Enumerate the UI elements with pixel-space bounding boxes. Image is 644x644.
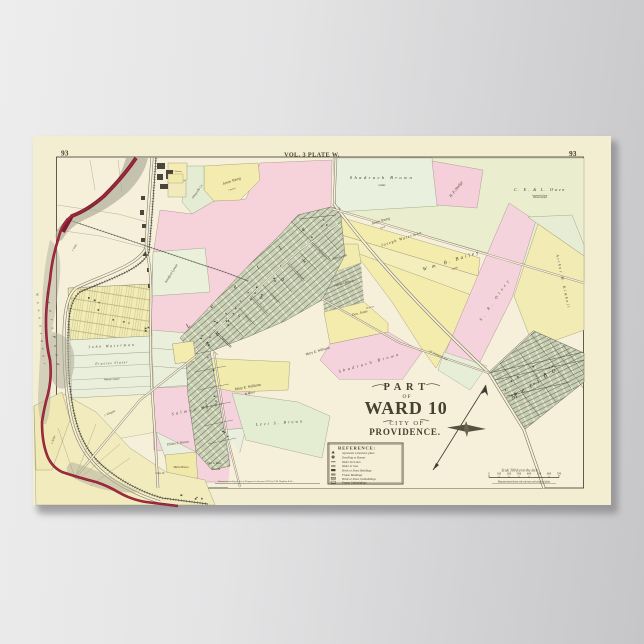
svg-text:Measurements from city surveys: Measurements from city surveys and origi… bbox=[497, 481, 551, 484]
svg-text:Shadrach Brown: Shadrach Brown bbox=[350, 175, 414, 180]
svg-text:represents a business place: represents a business place bbox=[342, 451, 375, 455]
svg-text:PROVIDENCE.: PROVIDENCE. bbox=[369, 427, 441, 437]
svg-text:700: 700 bbox=[557, 472, 562, 475]
svg-text:Brick or Stone Buildings: Brick or Stone Buildings bbox=[342, 469, 372, 473]
svg-text:500: 500 bbox=[537, 472, 542, 475]
svg-text:Frame Outbuildings: Frame Outbuildings bbox=[341, 481, 367, 485]
svg-text:Water Set Lines: Water Set Lines bbox=[342, 460, 362, 464]
svg-text:200: 200 bbox=[507, 472, 512, 475]
svg-text:John L. Ross: John L. Ross bbox=[207, 462, 221, 465]
svg-text:93: 93 bbox=[61, 149, 69, 158]
svg-text:B.F. Greene: B.F. Greene bbox=[170, 170, 181, 173]
svg-text:93: 93 bbox=[569, 149, 577, 158]
svg-text:Water or Gas: Water or Gas bbox=[342, 464, 359, 468]
svg-text:300: 300 bbox=[517, 472, 522, 475]
svg-text:Entered according to Act of Co: Entered according to Act of Congress in … bbox=[217, 480, 294, 483]
svg-text:CITY OF: CITY OF bbox=[389, 420, 424, 427]
svg-text:WARD 10: WARD 10 bbox=[364, 398, 447, 418]
svg-text:homestead farm: homestead farm bbox=[532, 194, 548, 197]
svg-text:VOL. 3 PLATE W.: VOL. 3 PLATE W. bbox=[284, 152, 340, 159]
svg-text:REFERENCE:: REFERENCE: bbox=[338, 446, 376, 451]
svg-text:600: 600 bbox=[547, 472, 552, 475]
svg-text:Dwelling or Rooms: Dwelling or Rooms bbox=[341, 455, 366, 459]
svg-text:P A R T: P A R T bbox=[384, 382, 427, 393]
svg-text:100: 100 bbox=[497, 472, 502, 475]
svg-text:400: 400 bbox=[527, 472, 532, 475]
svg-text:estate: estate bbox=[379, 183, 387, 187]
svg-text:C. E. & L. Owen: C. E. & L. Owen bbox=[514, 187, 566, 192]
svg-text:Chas. W.: Chas. W. bbox=[155, 472, 165, 475]
svg-text:Farnum: Farnum bbox=[211, 468, 220, 471]
svg-text:Maria Brown: Maria Brown bbox=[172, 466, 189, 469]
